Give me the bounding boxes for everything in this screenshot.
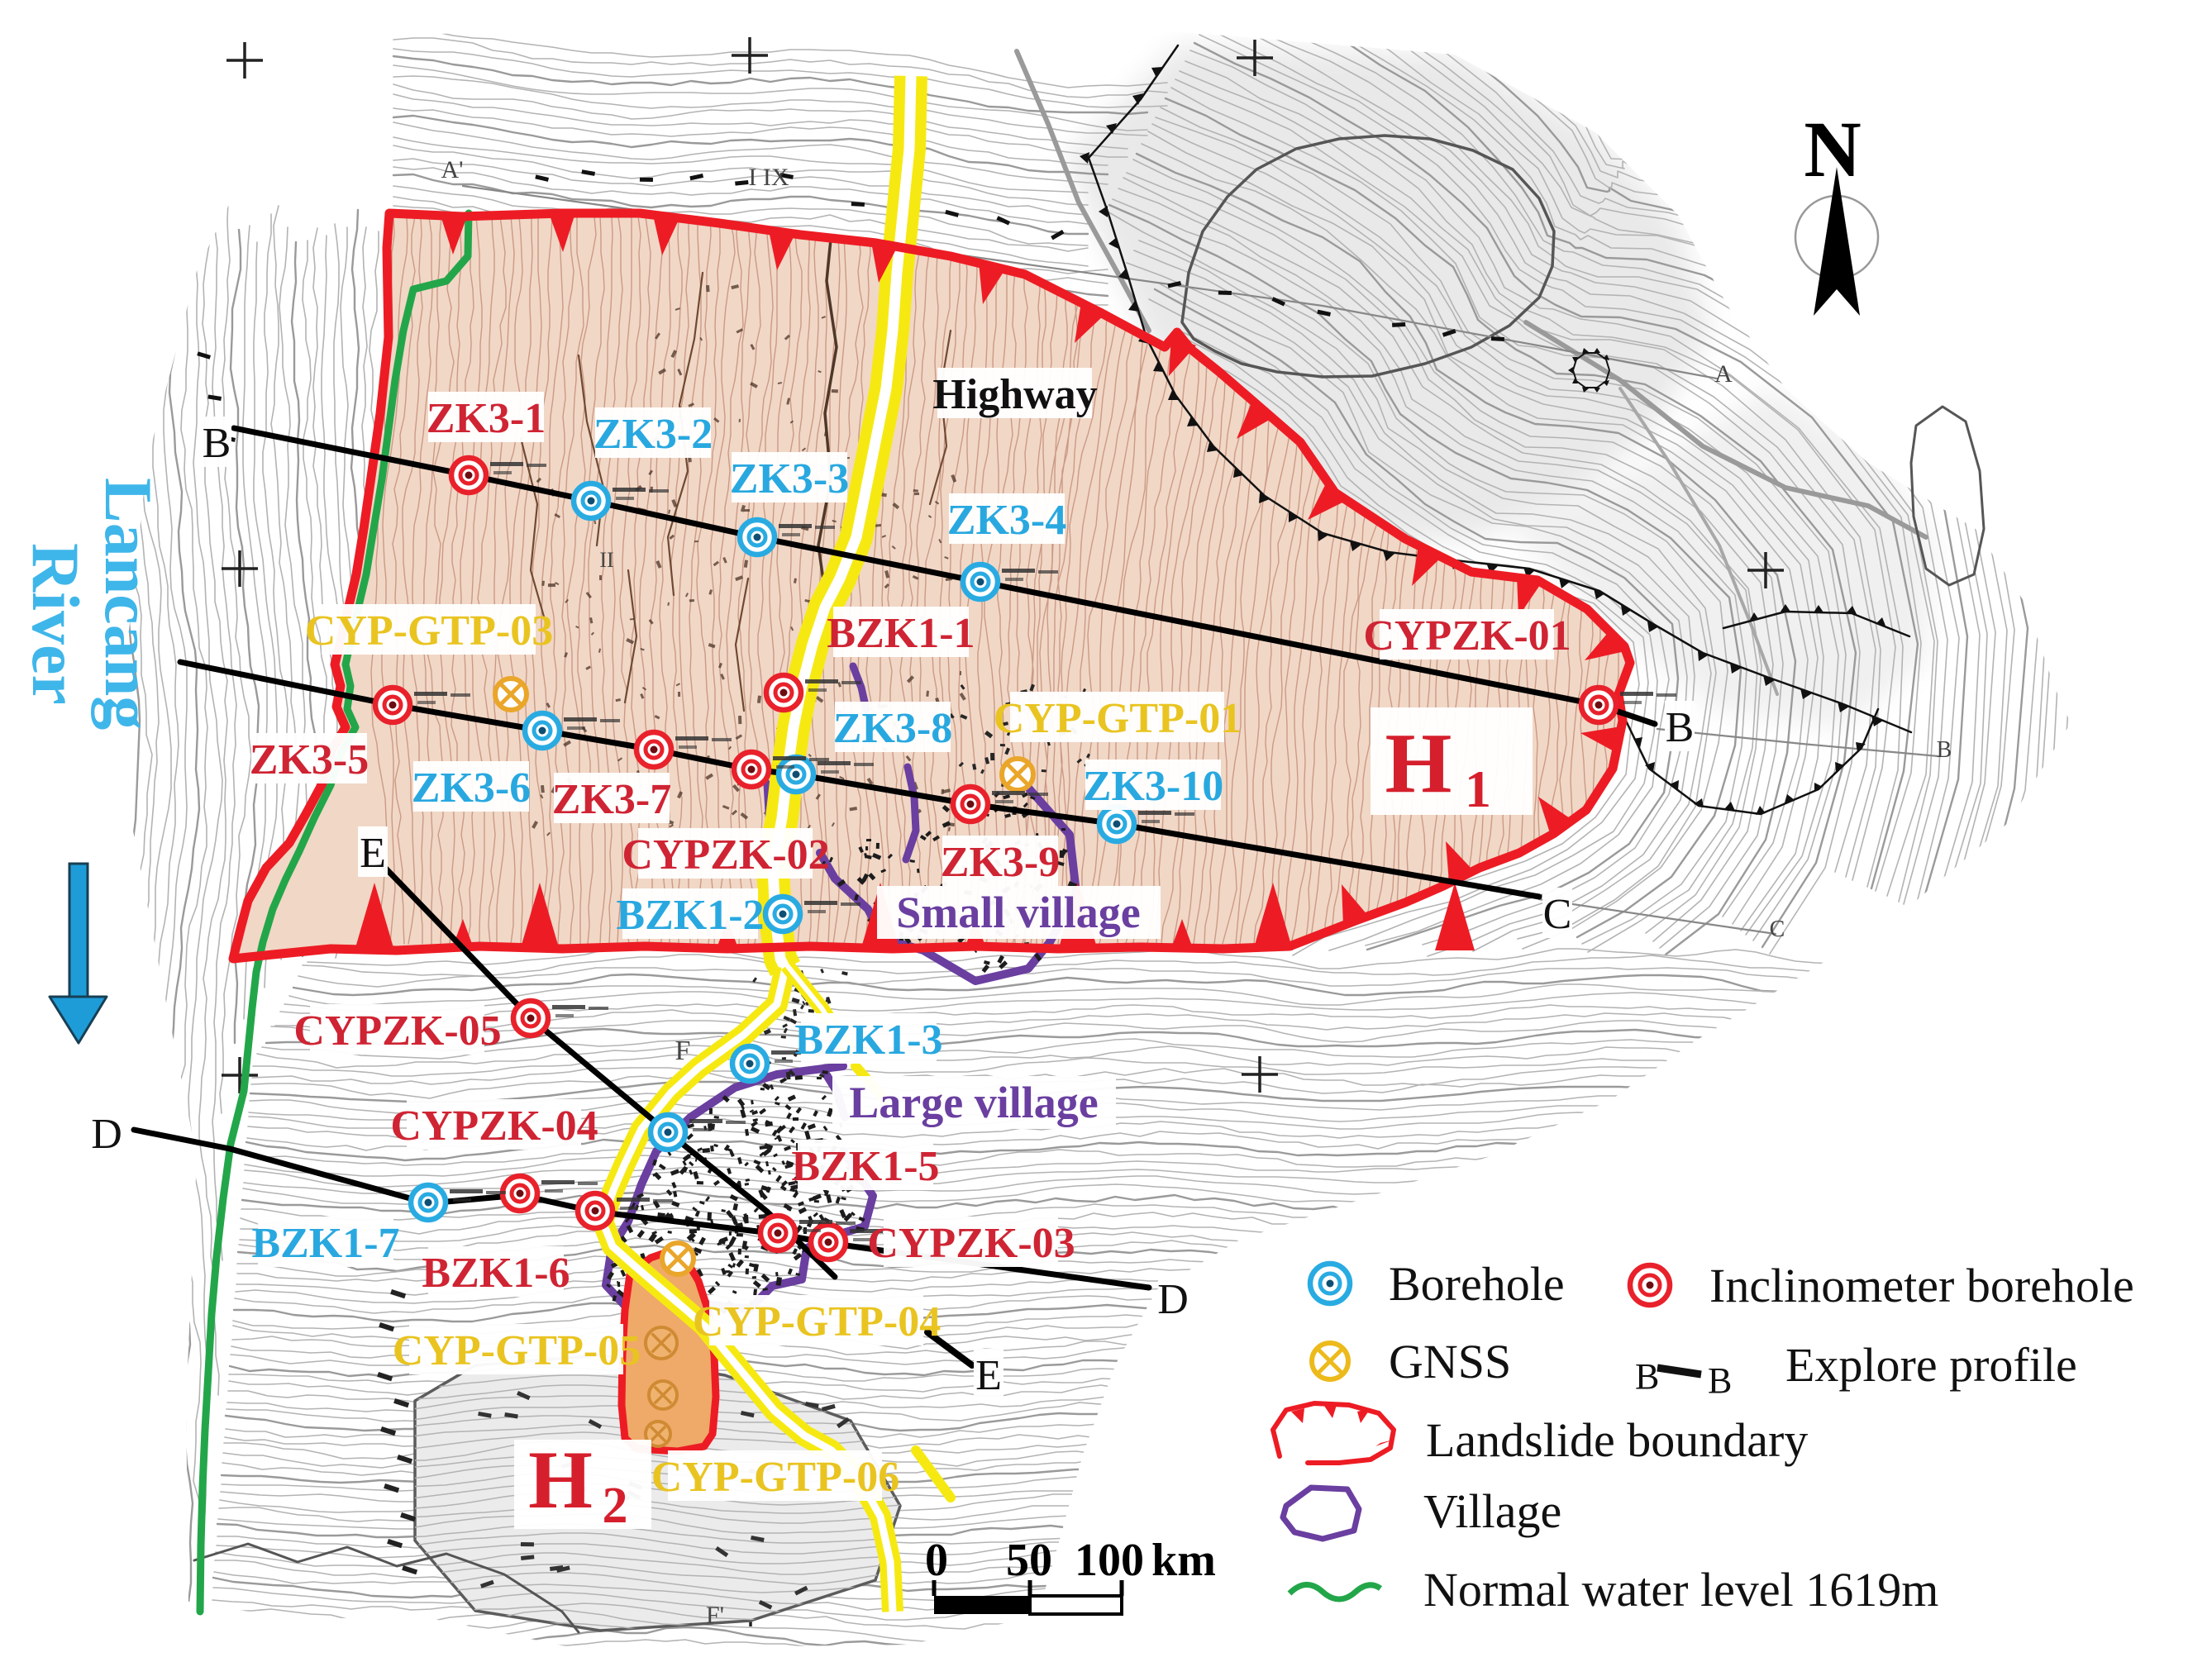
svg-text:ZK3-2: ZK3-2 bbox=[594, 411, 713, 458]
svg-text:Normal water level 1619m: Normal water level 1619m bbox=[1423, 1563, 1938, 1617]
svg-text:Small village: Small village bbox=[896, 888, 1141, 937]
svg-text:GNSS: GNSS bbox=[1389, 1335, 1511, 1388]
svg-text:A': A' bbox=[441, 156, 463, 183]
svg-text:CYP-GTP-05: CYP-GTP-05 bbox=[393, 1327, 641, 1374]
svg-text:2: 2 bbox=[603, 1478, 628, 1534]
svg-text:Landslide boundary: Landslide boundary bbox=[1426, 1413, 1808, 1467]
svg-text:ZK3-4: ZK3-4 bbox=[947, 497, 1066, 544]
svg-text:ZK3-9: ZK3-9 bbox=[941, 839, 1060, 886]
svg-text:C: C bbox=[1543, 891, 1572, 938]
svg-text:A: A bbox=[1714, 360, 1733, 388]
svg-text:D: D bbox=[1157, 1276, 1189, 1323]
svg-text:km: km bbox=[1151, 1535, 1216, 1586]
svg-text:ZK3-3: ZK3-3 bbox=[730, 455, 849, 502]
svg-text:ZK3-6: ZK3-6 bbox=[412, 764, 531, 812]
svg-text:I IX: I IX bbox=[748, 164, 789, 191]
svg-text:Village: Village bbox=[1423, 1484, 1561, 1538]
svg-text:ZK3-8: ZK3-8 bbox=[833, 705, 952, 752]
svg-text:BZK1-3: BZK1-3 bbox=[794, 1017, 942, 1064]
svg-text:D: D bbox=[91, 1111, 122, 1158]
svg-text:ZK3-1: ZK3-1 bbox=[427, 395, 546, 442]
svg-text:CYP-GTP-01: CYP-GTP-01 bbox=[994, 695, 1242, 742]
svg-text:CYP-GTP-03: CYP-GTP-03 bbox=[305, 607, 553, 655]
svg-text:Borehole: Borehole bbox=[1389, 1257, 1565, 1311]
svg-text:0: 0 bbox=[925, 1535, 948, 1586]
svg-text:ZK3-5: ZK3-5 bbox=[250, 736, 369, 783]
svg-text:CYPZK-05: CYPZK-05 bbox=[293, 1007, 501, 1055]
svg-text:River: River bbox=[18, 543, 93, 705]
svg-text:100: 100 bbox=[1075, 1535, 1144, 1586]
svg-text:BZK1-6: BZK1-6 bbox=[422, 1250, 570, 1297]
svg-text:II: II bbox=[599, 548, 613, 572]
svg-text:H: H bbox=[1385, 716, 1452, 811]
svg-text:BZK1-2: BZK1-2 bbox=[616, 892, 764, 939]
svg-text:CYPZK-01: CYPZK-01 bbox=[1363, 612, 1571, 660]
svg-text:C: C bbox=[1770, 917, 1785, 942]
svg-text:CYP-GTP-04: CYP-GTP-04 bbox=[693, 1298, 941, 1345]
svg-text:BZK1-7: BZK1-7 bbox=[251, 1220, 399, 1267]
svg-text:Inclinometer borehole: Inclinometer borehole bbox=[1709, 1259, 2134, 1312]
svg-text:ZK3-7: ZK3-7 bbox=[552, 776, 671, 823]
svg-text:CYPZK-03: CYPZK-03 bbox=[867, 1220, 1075, 1267]
svg-text:B: B bbox=[1708, 1360, 1732, 1401]
svg-text:50: 50 bbox=[1006, 1535, 1052, 1586]
svg-text:Large village: Large village bbox=[849, 1078, 1098, 1127]
svg-text:N: N bbox=[1804, 105, 1861, 193]
svg-text:BZK1-5: BZK1-5 bbox=[791, 1143, 939, 1190]
svg-text:B: B bbox=[203, 420, 231, 467]
svg-text:Explore profile: Explore profile bbox=[1785, 1338, 2077, 1392]
svg-text:Lancang: Lancang bbox=[91, 478, 166, 730]
svg-text:1: 1 bbox=[1465, 760, 1491, 818]
svg-text:CYPZK-02: CYPZK-02 bbox=[622, 831, 829, 879]
svg-text:H: H bbox=[528, 1434, 593, 1526]
svg-text:B: B bbox=[1937, 737, 1952, 763]
svg-text:E: E bbox=[360, 830, 386, 877]
svg-text:Highway: Highway bbox=[932, 371, 1097, 418]
svg-text:B: B bbox=[1635, 1356, 1659, 1397]
svg-text:CYP-GTP-06: CYP-GTP-06 bbox=[651, 1454, 899, 1501]
svg-text:ZK3-10: ZK3-10 bbox=[1083, 763, 1223, 810]
svg-text:BZK1-1: BZK1-1 bbox=[827, 610, 975, 657]
svg-text:CYPZK-04: CYPZK-04 bbox=[390, 1102, 598, 1150]
svg-text:E: E bbox=[975, 1352, 1002, 1399]
svg-text:F: F bbox=[675, 1036, 691, 1066]
svg-text:B: B bbox=[1666, 704, 1695, 751]
svg-text:F': F' bbox=[706, 1602, 724, 1629]
